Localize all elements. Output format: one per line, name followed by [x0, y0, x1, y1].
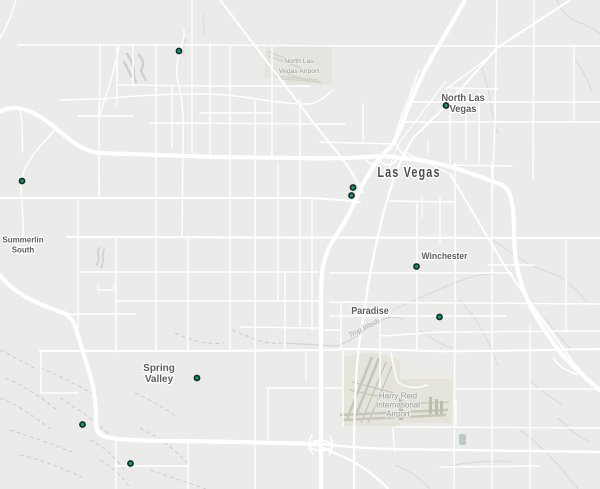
svg-text:Las Vegas: Las Vegas: [377, 163, 440, 180]
svg-text:Vegas: Vegas: [450, 104, 477, 115]
svg-text:Valley: Valley: [145, 374, 174, 385]
svg-text:Harry Reid: Harry Reid: [379, 392, 417, 401]
svg-text:Paradise: Paradise: [351, 306, 388, 318]
svg-text:North Las: North Las: [284, 58, 314, 65]
svg-text:North Las: North Las: [441, 93, 484, 104]
svg-text:Vegas Airport: Vegas Airport: [279, 68, 320, 75]
svg-text:International: International: [376, 401, 420, 410]
svg-text:Summerlin: Summerlin: [2, 235, 43, 244]
svg-text:Spring: Spring: [143, 363, 175, 374]
svg-text:Airport: Airport: [386, 410, 410, 419]
svg-text:Winchester: Winchester: [422, 251, 468, 262]
svg-text:South: South: [12, 245, 35, 254]
